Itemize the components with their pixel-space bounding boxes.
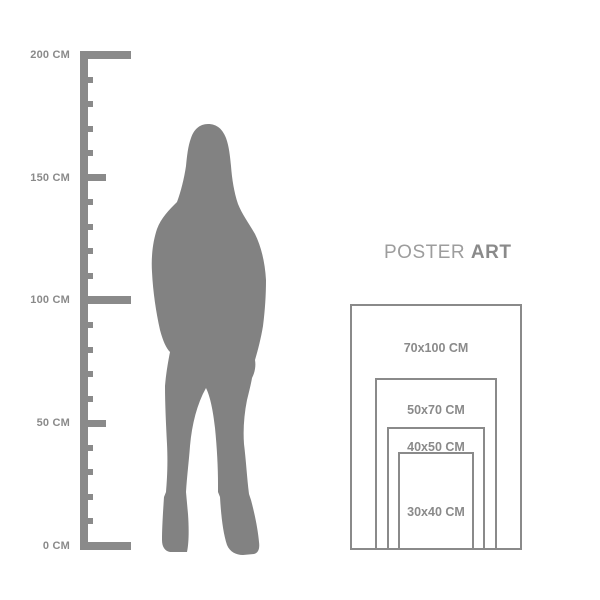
woman-silhouette-shape — [152, 124, 266, 555]
poster-size-label-50x70: 50x70 CM — [377, 403, 495, 417]
brand-title-regular: POSTER — [384, 242, 465, 263]
poster-size-guide: 200 CM 150 CM 100 CM 50 CM 0 CM POSTER A… — [0, 0, 600, 600]
brand-title: POSTER ART — [384, 242, 511, 264]
poster-size-label-70x100: 70x100 CM — [352, 341, 520, 355]
poster-size-label-30x40: 30x40 CM — [400, 505, 472, 519]
brand-title-bold: ART — [471, 242, 512, 263]
poster-frame-30x40: 30x40 CM — [398, 452, 474, 550]
